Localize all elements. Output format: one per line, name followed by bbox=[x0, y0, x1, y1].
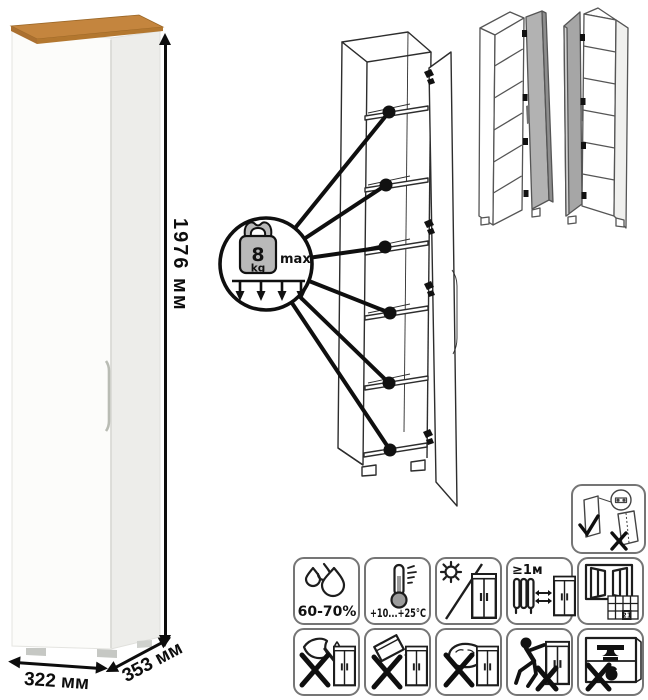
width-label: 322 мм bbox=[23, 669, 89, 695]
humidity-label: 60-70% bbox=[298, 604, 357, 620]
load-max-label: max bbox=[280, 252, 311, 267]
wardrobe-icon bbox=[334, 647, 355, 686]
x-mark-icon bbox=[302, 655, 328, 685]
tile-temperature: +10...+25°C bbox=[364, 557, 431, 625]
variant-door-left bbox=[564, 8, 628, 228]
tile-no-wet-sponge bbox=[435, 628, 502, 696]
sun-icon bbox=[441, 562, 461, 582]
radiator-icon bbox=[514, 579, 534, 613]
tile-no-dragging bbox=[506, 628, 573, 696]
x-mark-icon bbox=[374, 657, 400, 687]
tile-heat-distance: ≥1м bbox=[506, 557, 573, 625]
tile-no-heavy-items bbox=[577, 628, 644, 696]
variant-door-right bbox=[479, 11, 553, 225]
cabinet-foot bbox=[26, 648, 46, 656]
shelf-dots bbox=[379, 106, 397, 457]
shelves bbox=[364, 104, 428, 457]
door-variant-drawings bbox=[476, 4, 646, 240]
tile-no-abrasives bbox=[364, 628, 431, 696]
furniture-spec-sheet: 1976 мм 322 мм 353 мм bbox=[0, 0, 648, 700]
exploded-diagram: 8 kg max bbox=[212, 20, 478, 492]
cabinet-foot bbox=[97, 649, 117, 658]
diagram-foot bbox=[362, 465, 376, 476]
load-unit: kg bbox=[251, 263, 266, 275]
cabinet-front-door bbox=[12, 31, 111, 649]
height-label: 1976 мм bbox=[168, 218, 191, 312]
open-door bbox=[429, 52, 457, 506]
droplets-icon bbox=[306, 564, 344, 596]
cabinet-side-panel bbox=[111, 31, 160, 649]
tile-no-sharp-tools bbox=[293, 628, 360, 696]
window-icon bbox=[586, 565, 632, 599]
wardrobe-icon bbox=[554, 577, 575, 616]
cabinet-photo bbox=[0, 0, 205, 700]
calendar-day: 21 bbox=[622, 612, 632, 620]
thermometer-icon bbox=[392, 565, 417, 608]
wardrobe-icon bbox=[406, 647, 427, 686]
height-arrow bbox=[159, 33, 172, 647]
diagram-foot bbox=[411, 460, 425, 471]
tile-humidity: 60-70% bbox=[293, 557, 360, 625]
tile-ventilation: 21 bbox=[577, 557, 644, 625]
tile-wall-mount-safety bbox=[571, 484, 646, 554]
distance-label: ≥1м bbox=[512, 563, 543, 578]
wardrobe-icon bbox=[472, 574, 496, 618]
wardrobe-icon bbox=[477, 647, 498, 686]
temperature-label: +10...+25°C bbox=[370, 606, 426, 620]
tile-no-sunlight bbox=[435, 557, 502, 625]
spacing-arrows bbox=[535, 590, 552, 604]
person-pushing-icon bbox=[516, 638, 544, 687]
